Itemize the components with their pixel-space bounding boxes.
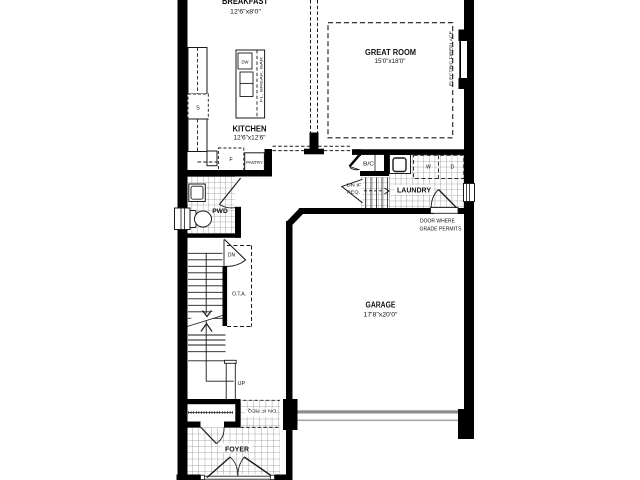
- svg-text:GRADE PERMITS: GRADE PERMITS: [420, 226, 462, 232]
- svg-text:12'6"x8'0": 12'6"x8'0": [230, 10, 261, 16]
- svg-text:DW: DW: [242, 60, 249, 65]
- svg-text:FL. BREAK. BAR: FL. BREAK. BAR: [259, 57, 264, 102]
- svg-text:REQ.: REQ.: [347, 189, 360, 194]
- svg-text:UP: UP: [238, 381, 246, 387]
- svg-text:O.T.A.: O.T.A.: [232, 292, 246, 298]
- svg-text:PANTRY: PANTRY: [246, 160, 263, 165]
- svg-text:DN IF REQ.: DN IF REQ.: [246, 409, 276, 414]
- svg-text:PWD: PWD: [212, 208, 228, 215]
- svg-text:15'0"x18'0": 15'0"x18'0": [375, 59, 406, 65]
- svg-text:ELECTRIC FIREPLACE: ELECTRIC FIREPLACE: [449, 31, 454, 86]
- svg-text:FOYER: FOYER: [225, 444, 250, 453]
- svg-text:GREAT ROOM: GREAT ROOM: [365, 48, 416, 57]
- svg-text:B/C: B/C: [363, 161, 375, 167]
- svg-text:S: S: [196, 106, 200, 112]
- svg-text:W: W: [426, 165, 431, 171]
- svg-text:LAUNDRY: LAUNDRY: [397, 185, 431, 194]
- svg-text:17'8"x20'0": 17'8"x20'0": [364, 313, 398, 319]
- svg-text:GARAGE: GARAGE: [366, 301, 397, 310]
- svg-text:DN: DN: [228, 252, 236, 258]
- svg-text:DN IF: DN IF: [347, 183, 362, 188]
- svg-text:DOOR WHERE: DOOR WHERE: [420, 219, 455, 225]
- svg-text:BREAKFAST: BREAKFAST: [222, 0, 268, 6]
- svg-text:D: D: [451, 165, 455, 171]
- svg-text:12'6"x12'6": 12'6"x12'6": [234, 136, 266, 142]
- svg-text:KITCHEN: KITCHEN: [233, 124, 267, 133]
